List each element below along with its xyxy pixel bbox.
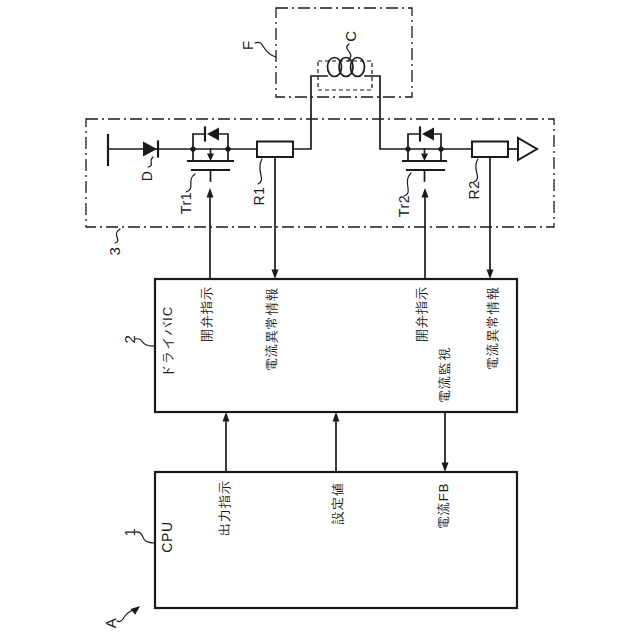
resistor-r1-symbol <box>257 142 293 158</box>
body-diode-tr1 <box>207 128 219 141</box>
leader-a-arrow <box>117 606 140 622</box>
signal-label-current-monitoring: 電流監視 <box>438 347 451 403</box>
signal-label-current-fb: 電流FB <box>437 483 450 530</box>
ref-label-c: C <box>343 30 358 41</box>
leader-tr1 <box>186 174 195 192</box>
cpu-title: CPU <box>160 521 174 552</box>
ref-label-tr1: Tr1 <box>179 192 193 214</box>
driver-ic-title: ドライバIC <box>161 306 174 378</box>
leader-d <box>148 157 153 167</box>
arrow-current-abnormality-1 <box>272 158 279 279</box>
arrow-output-instruction <box>223 412 230 472</box>
ground-symbol <box>518 138 537 160</box>
ref-label-3: 3 <box>107 247 122 256</box>
signal-label-current-abnormality-1: 電流異常情報 <box>265 287 278 371</box>
signal-label-set-value: 設定値 <box>331 482 344 524</box>
leader-r2 <box>474 159 478 182</box>
body-diode-tr2 <box>422 128 434 141</box>
arrow-current-fb <box>442 412 449 472</box>
leader-3 <box>115 229 120 243</box>
drive-circuit-box <box>86 119 554 227</box>
wires <box>108 76 518 149</box>
diagram-linework <box>0 0 640 640</box>
signal-arrows <box>207 158 494 472</box>
mosfet-tr1 <box>188 128 233 182</box>
ref-label-a: A <box>103 618 118 629</box>
arrow-set-value <box>333 412 340 472</box>
injector-box <box>276 8 412 97</box>
ref-label-d: D <box>140 171 154 182</box>
ref-label-r2: R2 <box>467 180 481 199</box>
signal-label-current-abnormality-2: 電流異常情報 <box>486 286 499 370</box>
signal-label-output-instruction: 出力指示 <box>218 480 231 536</box>
leader-tr2 <box>404 173 411 196</box>
ref-label-f: F <box>240 40 255 50</box>
coil-symbol <box>328 58 365 77</box>
resistor-r2-symbol <box>472 142 508 158</box>
ref-label-2: 2 <box>122 335 137 344</box>
leader-r1 <box>258 159 262 184</box>
leader-1 <box>135 532 155 543</box>
arrow-valve-open-1 <box>207 188 214 279</box>
ref-label-r1: R1 <box>252 186 266 205</box>
ref-label-tr2: Tr2 <box>397 195 411 217</box>
ref-label-1: 1 <box>122 528 137 537</box>
arrow-valve-open-2 <box>422 188 429 279</box>
leader-2 <box>135 339 155 346</box>
signal-label-valve-open-2: 開弁指示 <box>415 286 428 342</box>
arrow-current-abnormality-2 <box>487 158 494 279</box>
signal-label-valve-open-1: 開弁指示 <box>200 286 213 342</box>
leader-f <box>255 42 276 57</box>
diode-d <box>143 142 158 157</box>
patent-figure: F C D Tr1 R1 Tr2 R2 3 2 1 A CPU ドライバIC 出… <box>0 0 640 640</box>
mosfet-tr2 <box>403 128 446 182</box>
